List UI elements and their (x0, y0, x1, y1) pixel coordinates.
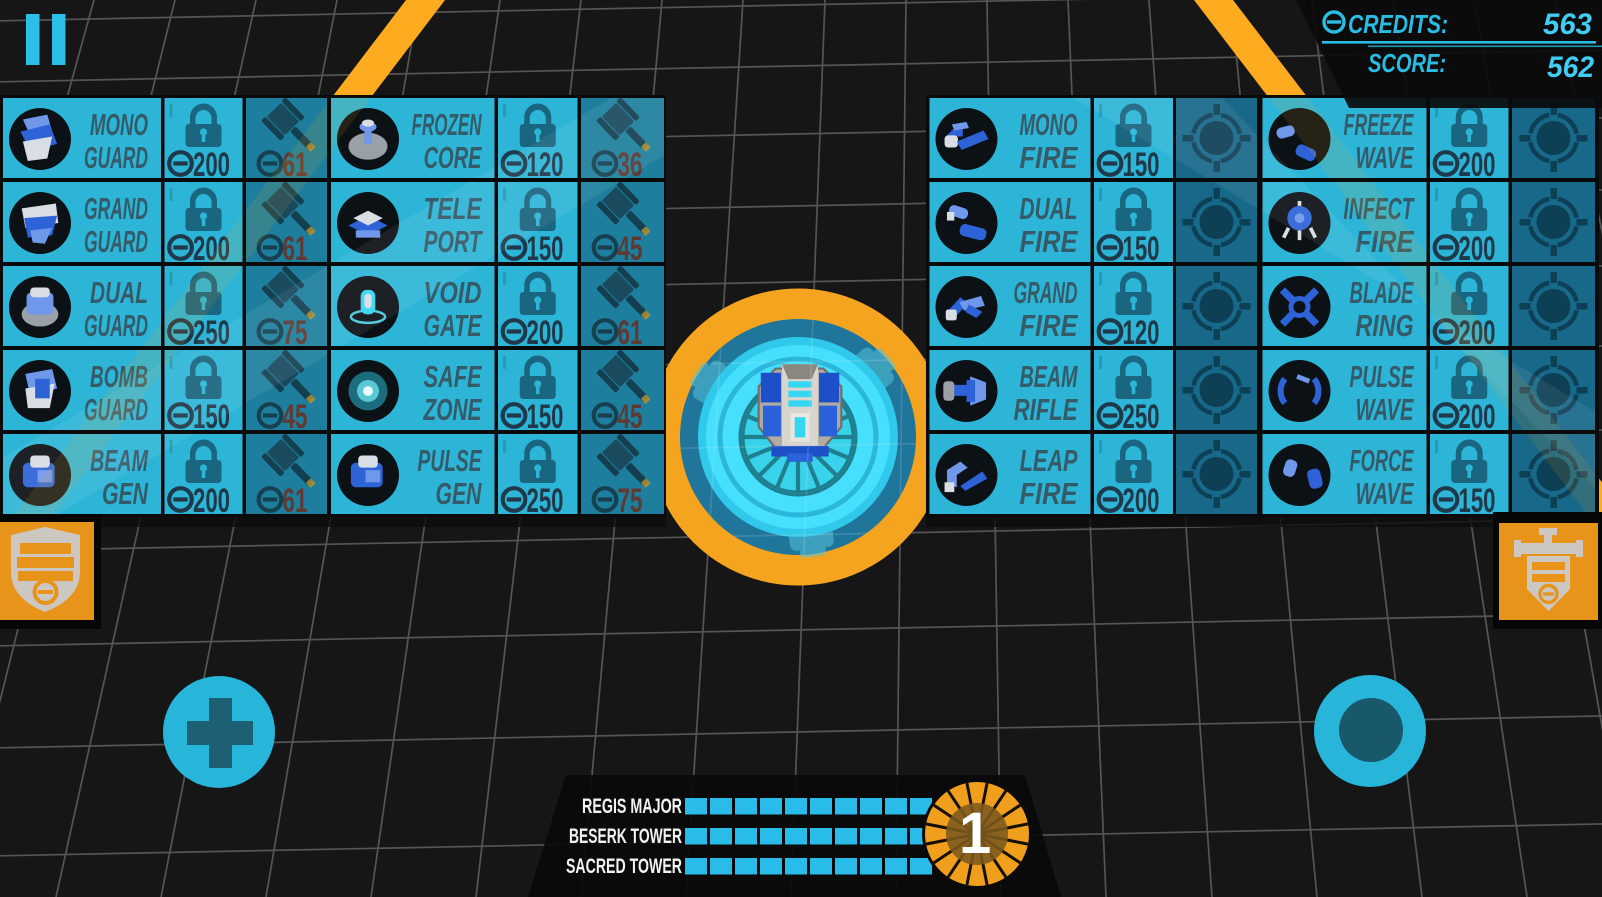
svg-text:200: 200 (1459, 398, 1496, 436)
svg-text:150: 150 (527, 398, 564, 436)
svg-text:FREEZE: FREEZE (1344, 108, 1415, 142)
svg-text:FIRE: FIRE (1019, 141, 1078, 176)
svg-text:PULSE: PULSE (418, 445, 483, 479)
svg-text:PULSE: PULSE (1350, 361, 1415, 395)
svg-text:SAFE: SAFE (424, 359, 483, 394)
svg-text:GATE: GATE (424, 308, 483, 343)
svg-text:FORCE: FORCE (1350, 444, 1415, 478)
svg-text:SCORE:: SCORE: (1368, 48, 1446, 78)
svg-text:GUARD: GUARD (84, 141, 148, 176)
svg-text:562: 562 (1547, 51, 1594, 84)
svg-text:FIRE: FIRE (1019, 225, 1078, 260)
svg-text:200: 200 (527, 314, 564, 352)
svg-text:FROZEN: FROZEN (412, 108, 483, 143)
svg-text:250: 250 (1123, 398, 1160, 436)
svg-text:200: 200 (193, 146, 230, 184)
svg-text:200: 200 (193, 482, 230, 520)
svg-text:45: 45 (618, 230, 643, 268)
svg-text:DUAL: DUAL (90, 275, 148, 310)
svg-text:RING: RING (1356, 308, 1414, 343)
svg-text:RIFLE: RIFLE (1014, 392, 1079, 427)
svg-text:WAVE: WAVE (1355, 392, 1414, 428)
svg-text:BESERK TOWER: BESERK TOWER (569, 825, 682, 848)
svg-text:200: 200 (1459, 230, 1496, 268)
svg-text:61: 61 (283, 230, 308, 268)
svg-text:150: 150 (1123, 230, 1160, 268)
svg-text:150: 150 (527, 230, 564, 268)
svg-text:LEAP: LEAP (1020, 443, 1078, 478)
svg-text:120: 120 (1123, 314, 1160, 352)
svg-text:BEAM: BEAM (1020, 358, 1079, 394)
svg-text:61: 61 (618, 314, 643, 352)
svg-text:FIRE: FIRE (1019, 477, 1078, 512)
svg-text:ZONE: ZONE (423, 392, 483, 427)
svg-text:45: 45 (618, 398, 643, 436)
svg-text:MONO: MONO (90, 108, 148, 142)
svg-text:61: 61 (283, 482, 308, 520)
svg-text:MONO: MONO (1019, 108, 1077, 142)
svg-text:75: 75 (618, 482, 643, 520)
svg-text:45: 45 (283, 398, 308, 436)
svg-text:CREDITS:: CREDITS: (1348, 9, 1448, 39)
svg-text:200: 200 (1459, 146, 1496, 184)
svg-text:1: 1 (959, 801, 991, 866)
svg-text:WAVE: WAVE (1355, 476, 1414, 512)
svg-text:150: 150 (1459, 482, 1496, 520)
svg-text:REGIS MAJOR: REGIS MAJOR (582, 795, 682, 818)
svg-text:SACRED TOWER: SACRED TOWER (566, 855, 682, 878)
svg-text:GUARD: GUARD (84, 309, 148, 344)
svg-text:GRAND: GRAND (1014, 276, 1078, 311)
svg-text:FIRE: FIRE (1019, 309, 1078, 344)
svg-text:DUAL: DUAL (1019, 191, 1077, 226)
svg-text:GRAND: GRAND (84, 192, 148, 227)
svg-text:250: 250 (527, 482, 564, 520)
svg-text:GEN: GEN (436, 476, 483, 511)
svg-text:200: 200 (1123, 482, 1160, 520)
svg-text:CORE: CORE (424, 140, 483, 176)
svg-text:563: 563 (1543, 8, 1592, 41)
svg-text:GUARD: GUARD (84, 225, 148, 260)
svg-text:150: 150 (1123, 146, 1160, 184)
svg-text:WAVE: WAVE (1355, 140, 1414, 176)
